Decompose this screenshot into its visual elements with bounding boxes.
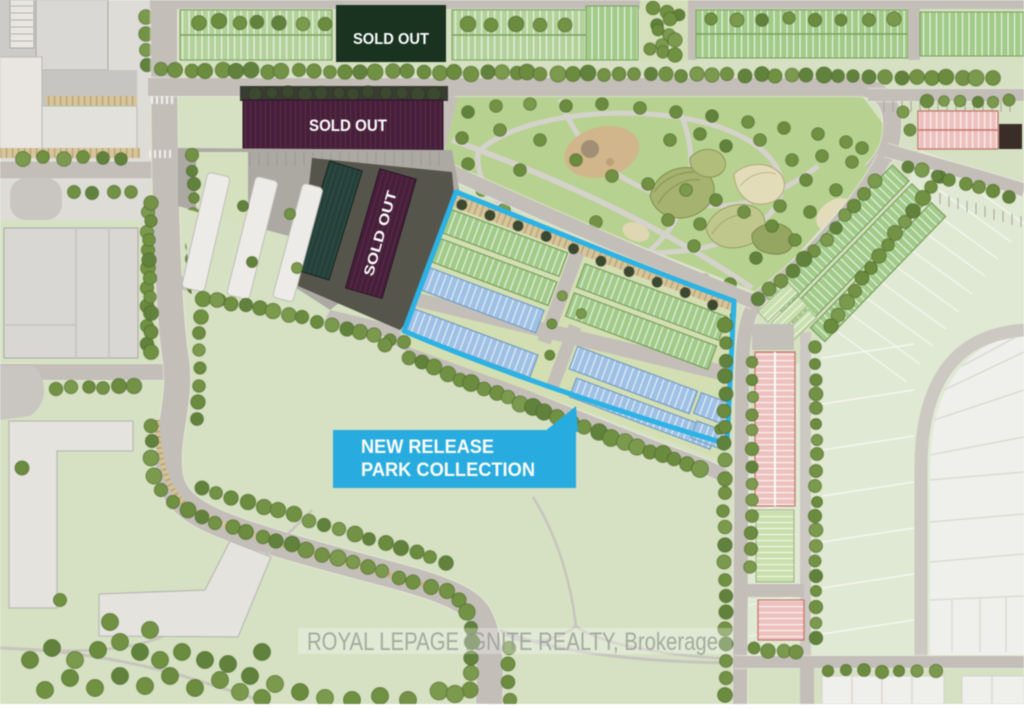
svg-text:NEW RELEASE: NEW RELEASE <box>361 437 494 458</box>
svg-text:ROYAL LEPAGE IGNITE REALTY, Br: ROYAL LEPAGE IGNITE REALTY, Brokerage <box>307 628 718 656</box>
svg-text:PARK COLLECTION: PARK COLLECTION <box>361 460 535 481</box>
svg-text:SOLD OUT: SOLD OUT <box>353 31 429 48</box>
svg-text:SOLD OUT: SOLD OUT <box>309 116 388 135</box>
